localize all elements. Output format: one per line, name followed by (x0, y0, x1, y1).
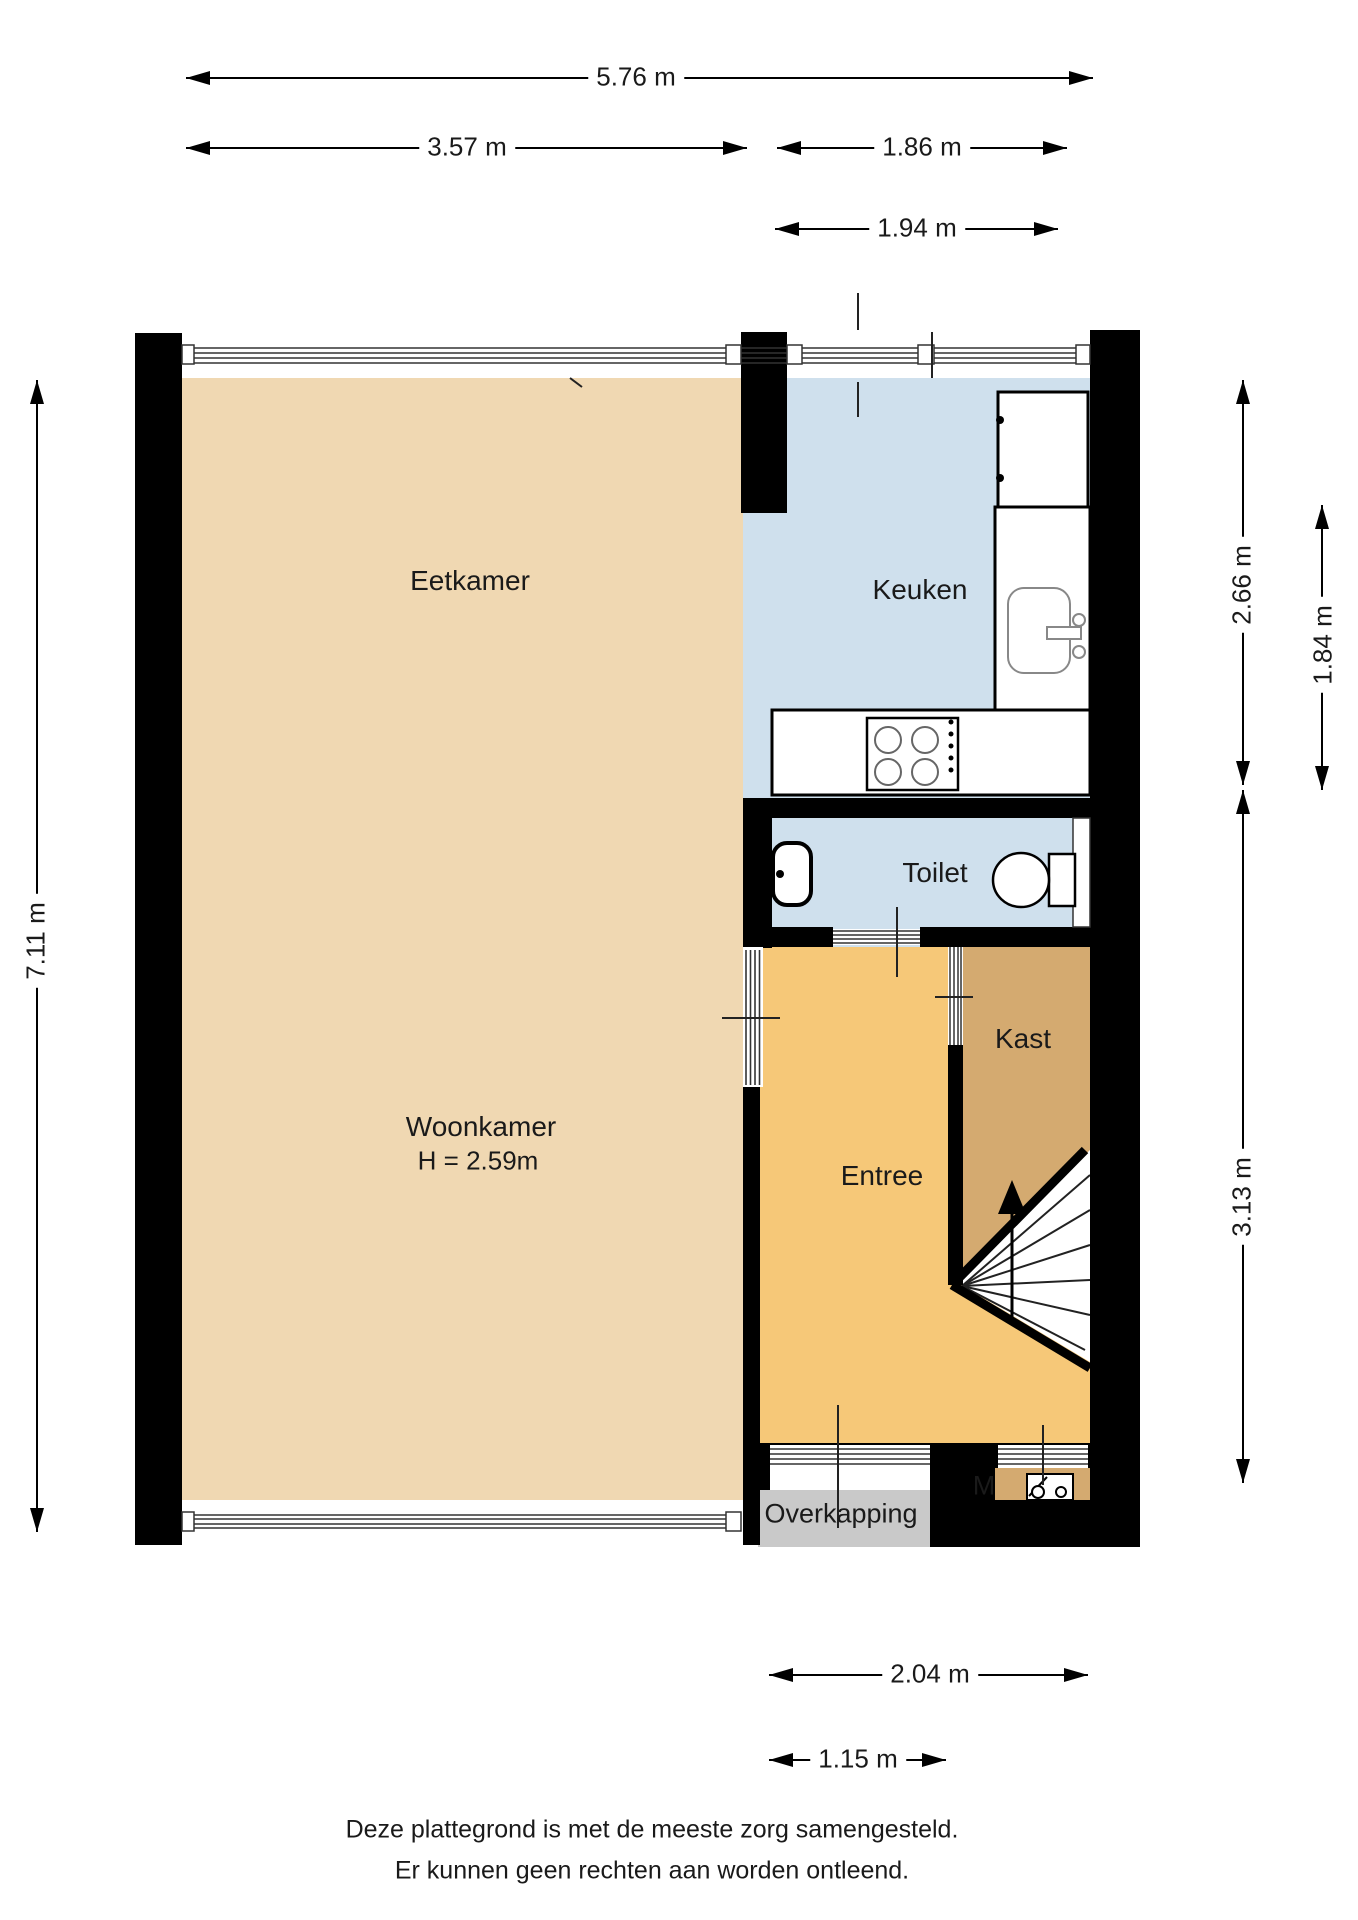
wall-toilet-left (743, 798, 772, 948)
room-label-meterkast: M (973, 1471, 996, 1502)
toilet-icon (993, 853, 1075, 907)
stove-icon (867, 718, 958, 790)
room-label-kast: Kast (995, 1023, 1051, 1055)
wall-toilet-bottom-b (920, 927, 1090, 947)
floorplan-graphics (0, 0, 1358, 1920)
wall-toilet-bottom-a (743, 927, 833, 947)
room-label-toilet: Toilet (902, 857, 967, 889)
dim-label-top-right: 1.86 m (874, 132, 970, 163)
dim-label-bottom-entree: 2.04 m (882, 1659, 978, 1690)
footer-disclaimer-line1: Deze plattegrond is met de meeste zorg s… (346, 1816, 959, 1845)
wall-entree-left (743, 1085, 760, 1445)
room-label-woonkamer: Woonkamer (406, 1111, 556, 1143)
wall-pillar-top (741, 332, 787, 513)
wall-right (1090, 330, 1140, 1547)
window-top (192, 348, 1076, 363)
window-bottom (192, 1515, 726, 1528)
dim-label-left-height: 7.11 m (21, 894, 52, 988)
dim-label-top-total: 5.76 m (588, 62, 684, 93)
room-label-keuken: Keuken (873, 574, 968, 606)
room-label-overkapping: Overkapping (764, 1499, 917, 1530)
footer-disclaimer-line2: Er kunnen geen rechten aan worden ontlee… (395, 1857, 909, 1886)
floorplan-page: 5.76 m 3.57 m 1.86 m 1.94 m 7.11 m 2.66 … (0, 0, 1358, 1920)
dim-label-right-kitchen-inner: 1.84 m (1308, 597, 1339, 693)
kitchen-cabinet (998, 392, 1088, 507)
wall-left (135, 333, 182, 1545)
front-door (770, 1445, 930, 1490)
meter-icon (1027, 1474, 1073, 1500)
dim-label-bottom-door: 1.15 m (810, 1744, 906, 1775)
wall-entree-left-lower (743, 1490, 760, 1545)
room-label-ceiling-height: H = 2.59m (418, 1146, 539, 1177)
dim-label-right-kitchen-depth: 2.66 m (1227, 537, 1258, 633)
woonkamer-floor (182, 378, 743, 1500)
room-label-eetkamer: Eetkamer (410, 565, 530, 597)
dim-label-top-left: 3.57 m (419, 132, 515, 163)
dim-label-kitchen-width: 1.94 m (869, 213, 965, 244)
wall-kitchen-toilet (743, 798, 1090, 818)
basin-icon (773, 843, 811, 905)
room-label-entree: Entree (841, 1160, 924, 1192)
wall-entree-kast (948, 1045, 963, 1285)
dim-label-right-lower: 3.13 m (1227, 1149, 1258, 1245)
